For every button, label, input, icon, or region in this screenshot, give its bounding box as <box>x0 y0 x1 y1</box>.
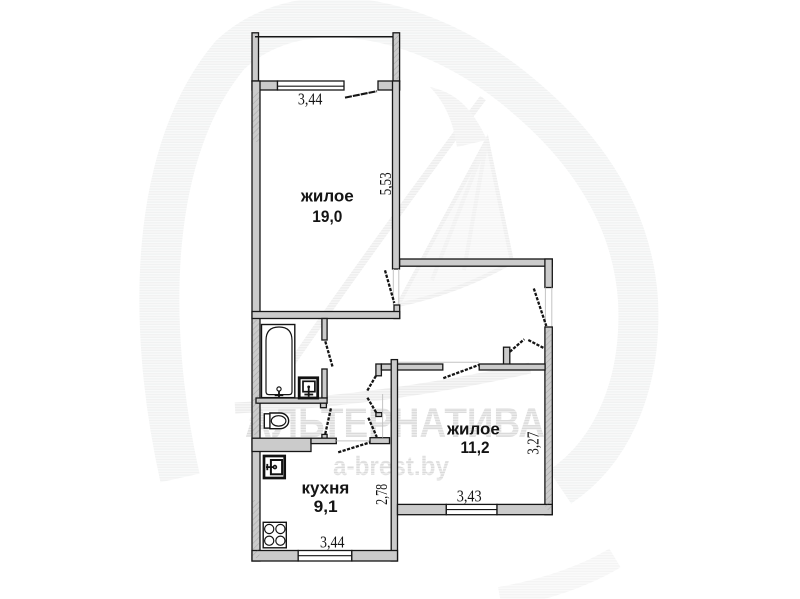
svg-text:3,44: 3,44 <box>298 90 323 109</box>
svg-text:11,2: 11,2 <box>461 438 490 457</box>
svg-text:кухня: кухня <box>301 479 349 498</box>
svg-text:жилое: жилое <box>300 187 354 206</box>
svg-text:9,1: 9,1 <box>314 497 338 516</box>
svg-text:19,0: 19,0 <box>312 207 342 226</box>
svg-text:5,53: 5,53 <box>376 172 395 195</box>
svg-text:3,44: 3,44 <box>320 533 345 552</box>
svg-text:3,43: 3,43 <box>457 487 482 506</box>
svg-text:3,27: 3,27 <box>523 431 542 454</box>
svg-text:жилое: жилое <box>446 420 500 439</box>
svg-text:2,78: 2,78 <box>372 484 391 505</box>
